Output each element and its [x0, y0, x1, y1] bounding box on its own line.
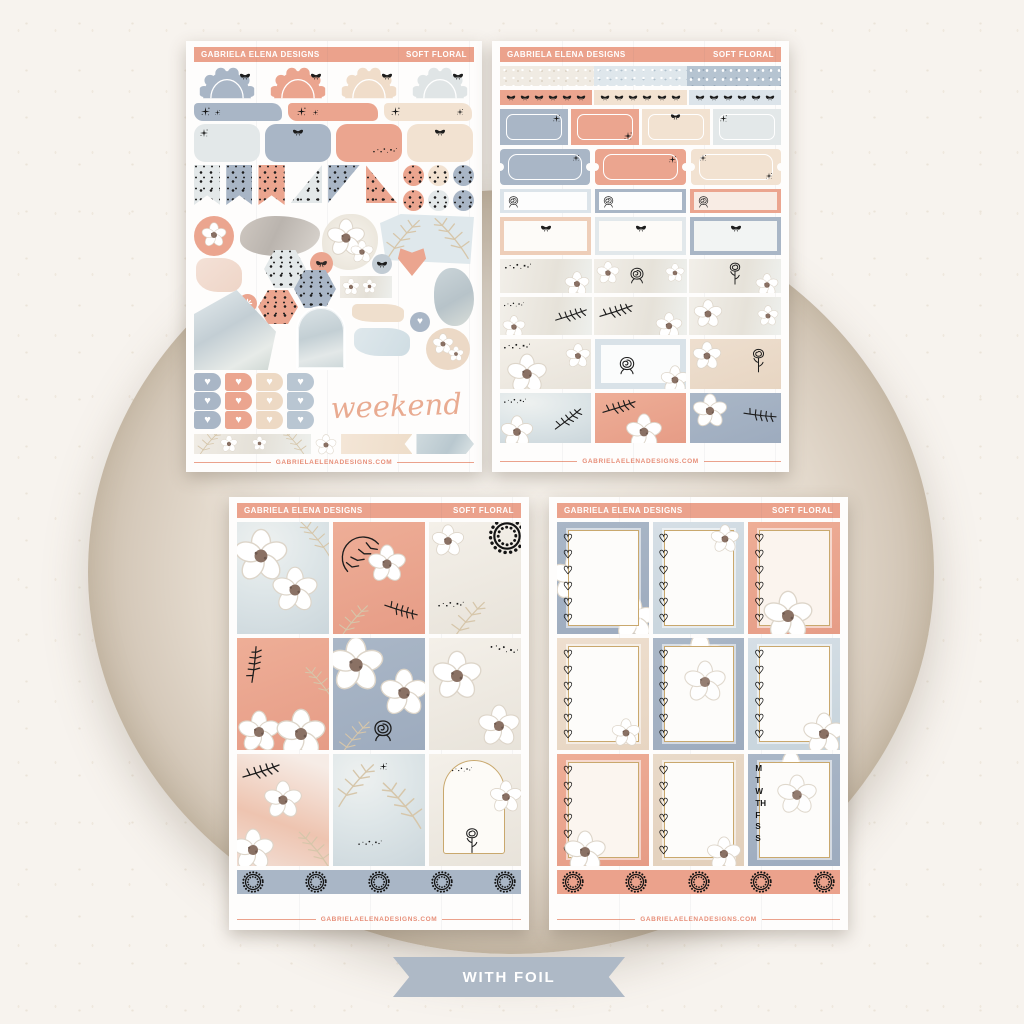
footer-url: GABRIELAELENADESIGNS.COM — [640, 916, 757, 923]
bow-washi-segment — [594, 90, 686, 105]
heart-checkboxes — [754, 650, 764, 741]
sparkle-icon — [765, 172, 773, 180]
heart-checkbox-icon — [563, 798, 573, 809]
heart-checkbox-icon — [659, 534, 669, 545]
fern-icon — [373, 778, 425, 830]
flower-icon — [500, 415, 534, 443]
bow-icon — [635, 224, 647, 232]
rose-label-row — [500, 189, 781, 213]
fullbox-grid — [237, 522, 521, 866]
fern-icon — [299, 664, 329, 700]
bow-icon — [576, 94, 586, 101]
ticket-outline — [603, 154, 677, 180]
floral-box-row — [500, 339, 781, 389]
hexagon-sticker — [258, 290, 298, 324]
flower-icon — [710, 524, 740, 554]
checklist-box-sticker — [653, 522, 745, 634]
heart-checkbox-icon — [563, 534, 573, 545]
footer-line — [442, 919, 521, 920]
footer-url: GABRIELAELENADESIGNS.COM — [582, 458, 699, 465]
heart-checkbox-icon — [659, 766, 669, 777]
heart-checklist-strip — [194, 373, 221, 429]
dot-circle-sticker — [428, 190, 449, 211]
triangle-sticker — [366, 165, 397, 203]
floral-circle-sticker — [426, 328, 470, 370]
footer-url: GABRIELAELENADESIGNS.COM — [321, 916, 438, 923]
rose-icon — [628, 266, 646, 284]
sprig-icon — [382, 593, 421, 627]
floral-box-sticker — [595, 339, 686, 389]
heart-checkbox-icon — [659, 814, 669, 825]
heart-checkbox-icon — [754, 666, 764, 677]
heart-checkbox-icon — [563, 614, 573, 625]
checklist-panel — [568, 530, 639, 626]
sparkle-icon — [552, 114, 561, 123]
sticker-sheet-checklists: GABRIELA ELENA DESIGNS SOFT FLORAL MTWTH… — [549, 497, 848, 930]
sheet-body — [500, 62, 781, 455]
bow-icon — [381, 72, 393, 80]
heart-checkboxes — [659, 766, 669, 857]
flower-icon — [755, 273, 779, 293]
bow-icon — [642, 94, 652, 101]
weekday-letter: TH — [755, 799, 766, 808]
flag-sticker — [194, 165, 220, 205]
bow-box-sticker — [690, 217, 781, 255]
footer-line — [237, 919, 316, 920]
bow-washi-segment — [689, 90, 781, 105]
label-box-sticker — [571, 109, 639, 145]
bracket-label-sticker — [336, 124, 402, 162]
heart-checkbox-icon — [659, 782, 669, 793]
sparkle-icon — [214, 109, 221, 116]
sprig-icon — [554, 307, 588, 323]
ticket-row — [500, 149, 781, 185]
brush-blob-sticker — [196, 258, 242, 292]
checklist-grid: MTWTHFSS — [557, 522, 840, 866]
lace-washi-strip — [557, 870, 840, 894]
lace-doily-icon — [560, 870, 586, 894]
floral-washi-row — [500, 297, 781, 335]
floral-box-row — [500, 393, 781, 443]
rose-label-sticker — [690, 189, 781, 213]
bow-icon — [548, 94, 558, 101]
brush-stroke-sticker — [194, 103, 282, 121]
heart-checkbox-icon — [754, 566, 764, 577]
heart-checkboxes — [659, 534, 669, 625]
heart-checklist-strip — [256, 373, 283, 429]
bow-icon — [737, 94, 747, 101]
splatter-icon — [503, 301, 525, 309]
brand-name: GABRIELA ELENA DESIGNS — [244, 506, 363, 515]
checklist-box-sticker — [557, 638, 649, 750]
heart-checkbox-icon — [659, 714, 669, 725]
sprig-icon — [741, 401, 779, 430]
flower-icon — [692, 393, 728, 429]
sprig-icon — [598, 303, 634, 319]
heart-checkbox-icon — [659, 730, 669, 741]
bow-icon — [600, 94, 610, 101]
footer-line — [704, 461, 781, 462]
fullbox-sticker — [429, 754, 521, 866]
floral-washi-row — [500, 259, 781, 293]
bow-icon — [751, 94, 761, 101]
scallop-sticker — [265, 66, 331, 100]
heart-checkbox-icon — [659, 614, 669, 625]
heart-checkbox-icon — [659, 650, 669, 661]
weekday-letters: MTWTHFSS — [755, 764, 766, 843]
bow-icon — [709, 94, 719, 101]
bow-circle-sticker — [372, 254, 392, 274]
sticker-sheet-functional: GABRIELA ELENA DESIGNS SOFT FLORAL — [492, 41, 789, 472]
bow-icon — [765, 94, 775, 101]
sprig-icon — [241, 762, 281, 780]
brand-name: GABRIELA ELENA DESIGNS — [564, 506, 683, 515]
sparkle-icon — [199, 128, 209, 138]
sparkle-icon — [312, 109, 319, 116]
dot-circle-sticker — [403, 190, 424, 211]
bracket-label-sticker — [407, 124, 473, 162]
fullbox-sticker — [237, 754, 329, 866]
floral-washi-segment — [594, 259, 686, 293]
brush-stroke-sticker — [354, 328, 410, 356]
splatter-icon — [502, 342, 532, 352]
rose-icon — [507, 195, 520, 208]
flower-icon — [477, 704, 521, 748]
sheet-header: GABRIELA ELENA DESIGNS SOFT FLORAL — [500, 47, 781, 62]
bow-icon — [614, 94, 624, 101]
flower-icon — [625, 413, 663, 443]
label-box-row — [500, 109, 781, 145]
heart-checkbox-icon — [659, 582, 669, 593]
floral-box-sticker — [500, 393, 591, 443]
flower-icon — [655, 312, 683, 335]
splatter-icon — [451, 766, 473, 774]
ticket-outline — [699, 154, 773, 180]
fern-icon — [426, 214, 472, 260]
sheet-body: ♥ weekend — [194, 62, 474, 456]
fern-icon — [293, 522, 329, 558]
flags-and-dots-row — [194, 165, 474, 211]
flower-icon — [379, 668, 425, 718]
lace-doily-icon — [811, 870, 837, 894]
lace-doily-icon — [623, 870, 649, 894]
flower-icon — [333, 638, 385, 694]
heart-checkbox-icon — [563, 566, 573, 577]
flower-icon — [275, 708, 327, 750]
dot-circle-group — [403, 165, 474, 211]
bow-icon — [434, 128, 446, 136]
bow-icon — [520, 94, 530, 101]
sparkle-icon — [200, 106, 211, 117]
heart-checkbox-icon — [659, 666, 669, 677]
box-field — [599, 221, 682, 251]
brush-stroke-sticker — [384, 103, 472, 121]
flower-icon — [596, 261, 620, 285]
heart-checkbox-icon — [659, 550, 669, 561]
bracket-label-sticker — [265, 124, 331, 162]
bow-icon — [562, 94, 572, 101]
footer-line — [762, 919, 840, 920]
bow-icon — [292, 128, 304, 136]
sparkle-icon — [719, 114, 728, 123]
brand-name: GABRIELA ELENA DESIGNS — [507, 50, 626, 59]
floral-box-sticker — [595, 393, 686, 443]
heart-strip-row: weekend — [194, 373, 474, 431]
sheet-header: GABRIELA ELENA DESIGNS SOFT FLORAL — [557, 503, 840, 518]
splatter-icon — [488, 640, 520, 658]
flower-icon — [252, 436, 267, 451]
splatter-icon — [357, 839, 383, 848]
lace-doily-icon — [748, 870, 774, 894]
sparkle-icon — [390, 106, 401, 117]
flower-icon — [489, 780, 521, 814]
heart-checkbox-icon — [563, 730, 573, 741]
heart-checkbox-icon — [563, 814, 573, 825]
fullbox-sticker — [237, 522, 329, 634]
bow-box-row — [500, 217, 781, 255]
rose-icon — [697, 195, 710, 208]
footer-url: GABRIELAELENADESIGNS.COM — [276, 459, 393, 466]
label-box-sticker — [500, 109, 568, 145]
heart-checkbox-icon — [563, 698, 573, 709]
floral-washi-piece — [340, 276, 392, 298]
sheet-body — [237, 518, 521, 913]
bow-icon — [452, 72, 464, 80]
bow-washi-row — [500, 90, 781, 105]
flower-icon — [315, 434, 337, 456]
floral-box-sticker — [500, 339, 591, 389]
washi-row — [194, 434, 474, 456]
heart-checkbox-icon — [659, 846, 669, 857]
flower-icon — [565, 343, 591, 369]
heart-checkbox-icon — [659, 566, 669, 577]
sparkle-icon — [623, 131, 633, 141]
checklist-box-sticker — [748, 522, 840, 634]
flower-icon — [762, 590, 814, 634]
floral-washi-segment — [689, 297, 781, 335]
heart-checkbox-icon — [659, 682, 669, 693]
heart-checkbox-icon — [754, 534, 764, 545]
floral-circle-sticker — [194, 216, 234, 256]
dot-circle-sticker — [428, 165, 449, 186]
flower-icon — [706, 836, 742, 866]
lace-doily-icon — [366, 870, 392, 894]
heart-checkbox-icon — [659, 830, 669, 841]
arch-window-sticker — [296, 306, 346, 370]
brush-stroke-sticker — [352, 304, 404, 322]
ticket-sticker — [691, 149, 781, 185]
flower-icon — [271, 566, 319, 614]
product-mockup: GABRIELA ELENA DESIGNS SOFT FLORAL — [0, 0, 1024, 1024]
label-field — [504, 192, 587, 210]
label-box-sticker — [642, 109, 710, 145]
sheet-header: GABRIELA ELENA DESIGNS SOFT FLORAL — [237, 503, 521, 518]
rose-label-sticker — [595, 189, 686, 213]
sparkle-icon — [296, 106, 307, 117]
bow-icon — [239, 72, 251, 80]
sticker-sheet-deco: GABRIELA ELENA DESIGNS SOFT FLORAL — [186, 41, 482, 472]
heart-icon: ♥ — [417, 316, 423, 327]
lace-doily-icon — [686, 870, 712, 894]
bow-icon — [670, 113, 681, 120]
heart-checkbox-icon — [754, 714, 764, 725]
fern-icon — [291, 828, 329, 866]
fern-icon — [337, 602, 375, 634]
banner-label: WITH FOIL — [463, 969, 556, 986]
floral-washi-segment — [500, 297, 592, 335]
checklist-box-sticker — [557, 754, 649, 866]
flag-washi-strip — [416, 434, 474, 454]
bow-icon — [723, 94, 733, 101]
ticket-sticker — [595, 149, 685, 185]
bow-icon — [628, 94, 638, 101]
heart-checkbox-icon — [659, 698, 669, 709]
floral-washi-segment — [594, 297, 686, 335]
fern-icon — [449, 598, 493, 634]
bracket-label-sticker — [194, 124, 260, 162]
heart-checkbox-icon — [754, 698, 764, 709]
flower-icon — [362, 279, 377, 294]
watercolor-blob-sticker — [434, 268, 474, 326]
collection-name: SOFT FLORAL — [406, 50, 467, 59]
floral-washi-segment — [500, 259, 592, 293]
rose-icon — [602, 195, 615, 208]
flower-icon — [263, 780, 303, 820]
flower-icon — [350, 240, 374, 264]
weekend-script-sticker: weekend — [317, 370, 475, 425]
bow-icon — [695, 94, 705, 101]
bow-box-sticker — [595, 217, 686, 255]
weekday-letter: T — [755, 776, 766, 785]
heart-checkbox-icon — [754, 650, 764, 661]
bow-washi-segment — [500, 90, 592, 105]
flower-icon — [502, 315, 526, 335]
heart-checkbox-icon — [563, 550, 573, 561]
sparkle-icon — [456, 108, 464, 116]
flower-icon — [802, 712, 840, 750]
flower-icon — [692, 341, 722, 371]
floral-washi-segment — [689, 259, 781, 293]
glitter-washi-segment — [594, 66, 688, 86]
scallop-sticker — [194, 66, 260, 100]
floral-box-sticker — [690, 339, 781, 389]
ticket-sticker — [500, 149, 590, 185]
sparkle-icon — [699, 154, 707, 162]
brush-stroke-sticker — [288, 103, 378, 121]
bow-icon — [310, 72, 322, 80]
splatter-icon — [372, 146, 398, 156]
fullbox-sticker — [333, 638, 425, 750]
heart-checkbox-icon — [563, 782, 573, 793]
sprig-icon — [238, 644, 269, 686]
lace-doily-icon — [303, 870, 329, 894]
flower-icon — [776, 774, 818, 816]
triangle-sticker — [291, 165, 322, 203]
sticker-sheet-fullboxes: GABRIELA ELENA DESIGNS SOFT FLORAL — [229, 497, 529, 930]
flower-icon — [367, 544, 407, 584]
flower-icon — [611, 718, 641, 748]
bow-icon — [671, 94, 681, 101]
rosestem-icon — [727, 261, 743, 287]
rose-label-sticker — [500, 189, 591, 213]
collection-name: SOFT FLORAL — [772, 506, 833, 515]
sheet-footer: GABRIELAELENADESIGNS.COM — [500, 455, 781, 467]
sparkle-icon — [668, 155, 677, 164]
splatter-icon — [503, 262, 533, 272]
heart-checkbox-icon — [754, 730, 764, 741]
flower-icon — [220, 435, 238, 453]
bow-icon — [534, 94, 544, 101]
flower-icon — [660, 365, 686, 389]
flower-icon — [683, 660, 727, 704]
floral-box-sticker — [690, 393, 781, 443]
weekday-letter: S — [755, 822, 766, 831]
weekday-letter: S — [755, 834, 766, 843]
with-foil-banner: WITH FOIL — [393, 957, 625, 997]
fern-icon — [337, 718, 377, 750]
footer-line — [500, 461, 577, 462]
rosestem-icon — [463, 826, 481, 856]
heart-checkbox-icon — [659, 598, 669, 609]
heart-checkbox-icon — [563, 682, 573, 693]
flower-icon — [757, 305, 779, 327]
checklist-box-sticker — [748, 638, 840, 750]
bow-icon — [376, 260, 388, 268]
heart-checkbox-icon — [563, 766, 573, 777]
flower-icon — [693, 299, 723, 329]
heart-checkbox-icon — [659, 798, 669, 809]
ticket-outline — [508, 154, 582, 180]
weekday-letter: M — [755, 764, 766, 773]
weekday-letter: W — [755, 787, 766, 796]
sheet-footer: GABRIELAELENADESIGNS.COM — [194, 456, 474, 468]
bow-icon — [730, 224, 742, 232]
rosestem-icon — [750, 347, 767, 375]
flower-icon — [448, 346, 464, 362]
footer-line — [194, 462, 271, 463]
flower-icon — [564, 271, 590, 293]
notched-washi-strip — [341, 434, 412, 454]
splatter-icon — [503, 397, 527, 406]
sparkle-icon — [379, 762, 388, 771]
lace-doily-icon — [429, 870, 455, 894]
heart-checkbox-icon — [563, 582, 573, 593]
checklist-box-sticker — [653, 754, 745, 866]
heart-checkbox-icon — [563, 714, 573, 725]
flower-icon — [342, 278, 360, 296]
heart-checkboxes — [659, 650, 669, 741]
flower-icon — [506, 353, 548, 389]
sparkle-icon — [572, 154, 580, 162]
heart-checkbox-icon — [754, 550, 764, 561]
dot-circle-sticker — [403, 165, 424, 186]
label-field — [599, 192, 682, 210]
sprig-icon — [549, 406, 586, 433]
heart-checkboxes — [563, 534, 573, 625]
sheet-footer: GABRIELAELENADESIGNS.COM — [237, 913, 521, 925]
brand-name: GABRIELA ELENA DESIGNS — [201, 50, 320, 59]
heart-circle-sticker: ♥ — [410, 312, 430, 332]
heart-checkbox-icon — [563, 650, 573, 661]
scallop-sticker — [336, 66, 402, 100]
collection-name: SOFT FLORAL — [713, 50, 774, 59]
flower-icon — [665, 263, 685, 283]
sheet-header: GABRIELA ELENA DESIGNS SOFT FLORAL — [194, 47, 474, 62]
checklist-box-sticker — [653, 638, 745, 750]
footer-line — [397, 462, 474, 463]
weekday-checklist-sticker: MTWTHFSS — [748, 754, 840, 866]
heart-checkbox-icon — [754, 682, 764, 693]
